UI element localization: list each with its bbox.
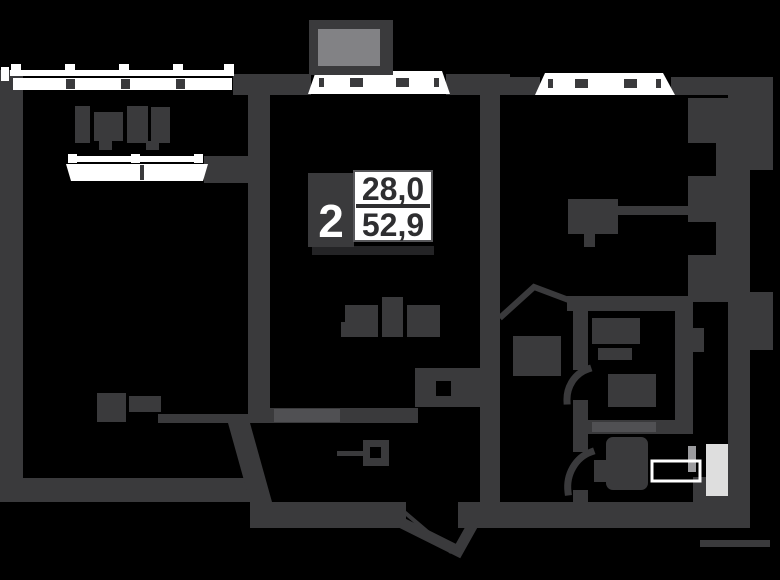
wall-right-main xyxy=(728,88,750,505)
wardrobe-connector-2 xyxy=(716,222,730,255)
badge-shadow xyxy=(312,246,434,255)
wall-bottom-left xyxy=(0,478,252,502)
wall-loggia-stub xyxy=(204,156,252,183)
wardrobe-box-3 xyxy=(688,255,730,302)
mullion-tick xyxy=(434,78,439,87)
mullion-tick xyxy=(319,78,324,87)
wall-divider-left-center xyxy=(248,74,270,423)
info-badge: 2 28,0 52,9 xyxy=(308,171,434,255)
wall-right-upper-chunk xyxy=(750,86,773,170)
room-label-blob-corridor xyxy=(513,336,561,376)
mullion-tick xyxy=(548,79,553,88)
floor-plan-canvas: 2 28,0 52,9 xyxy=(0,0,780,580)
wall-top-b xyxy=(446,74,510,95)
mullion xyxy=(176,79,185,89)
exterior-edge-line xyxy=(700,540,770,547)
wall-left xyxy=(0,70,23,502)
wardrobe-box-2 xyxy=(688,176,732,222)
mullion xyxy=(350,78,363,87)
mullion xyxy=(575,79,588,88)
kitchen-unit-block xyxy=(415,368,490,407)
mullion xyxy=(396,78,409,87)
wall-top-c xyxy=(508,77,540,95)
mullion xyxy=(66,79,75,89)
wall-right-mid-chunk xyxy=(750,292,773,350)
doorway-lintel-hall xyxy=(274,409,340,422)
wall-bath-left-c xyxy=(573,490,588,504)
kitchen-unit-hole xyxy=(436,381,451,396)
wall-divider-center-right xyxy=(480,88,500,505)
wall-bottom-right xyxy=(458,502,750,528)
wall-bath-left-b xyxy=(573,400,588,452)
mullion xyxy=(121,79,130,89)
bathtub-panel xyxy=(706,444,728,496)
wardrobe-box-1 xyxy=(688,98,728,143)
wall-bath-vertical xyxy=(675,306,693,433)
loggia-sill xyxy=(66,154,208,181)
badge-area-upper: 28,0 xyxy=(362,171,424,207)
bath-fixture-small xyxy=(688,446,696,472)
wall-bottom-hall xyxy=(250,502,406,528)
wardrobe-connector-1 xyxy=(716,143,730,176)
mullion xyxy=(624,79,637,88)
mullion-tick xyxy=(656,79,661,88)
balcony-box xyxy=(309,20,393,75)
door-pivot-hole xyxy=(370,447,381,458)
wardrobe-nub xyxy=(688,328,704,352)
sill-divider xyxy=(140,165,144,180)
badge-area-lower: 52,9 xyxy=(362,207,424,243)
door-frame-line xyxy=(337,451,365,456)
window-right xyxy=(535,73,675,95)
window-corner-tick xyxy=(1,67,9,81)
wall-top-a xyxy=(233,74,311,95)
doorway-lintel-bath xyxy=(592,422,656,432)
balcony-box-fill xyxy=(318,29,380,66)
badge-rooms-count: 2 xyxy=(318,195,344,247)
wall-bath-left-a xyxy=(573,306,588,370)
